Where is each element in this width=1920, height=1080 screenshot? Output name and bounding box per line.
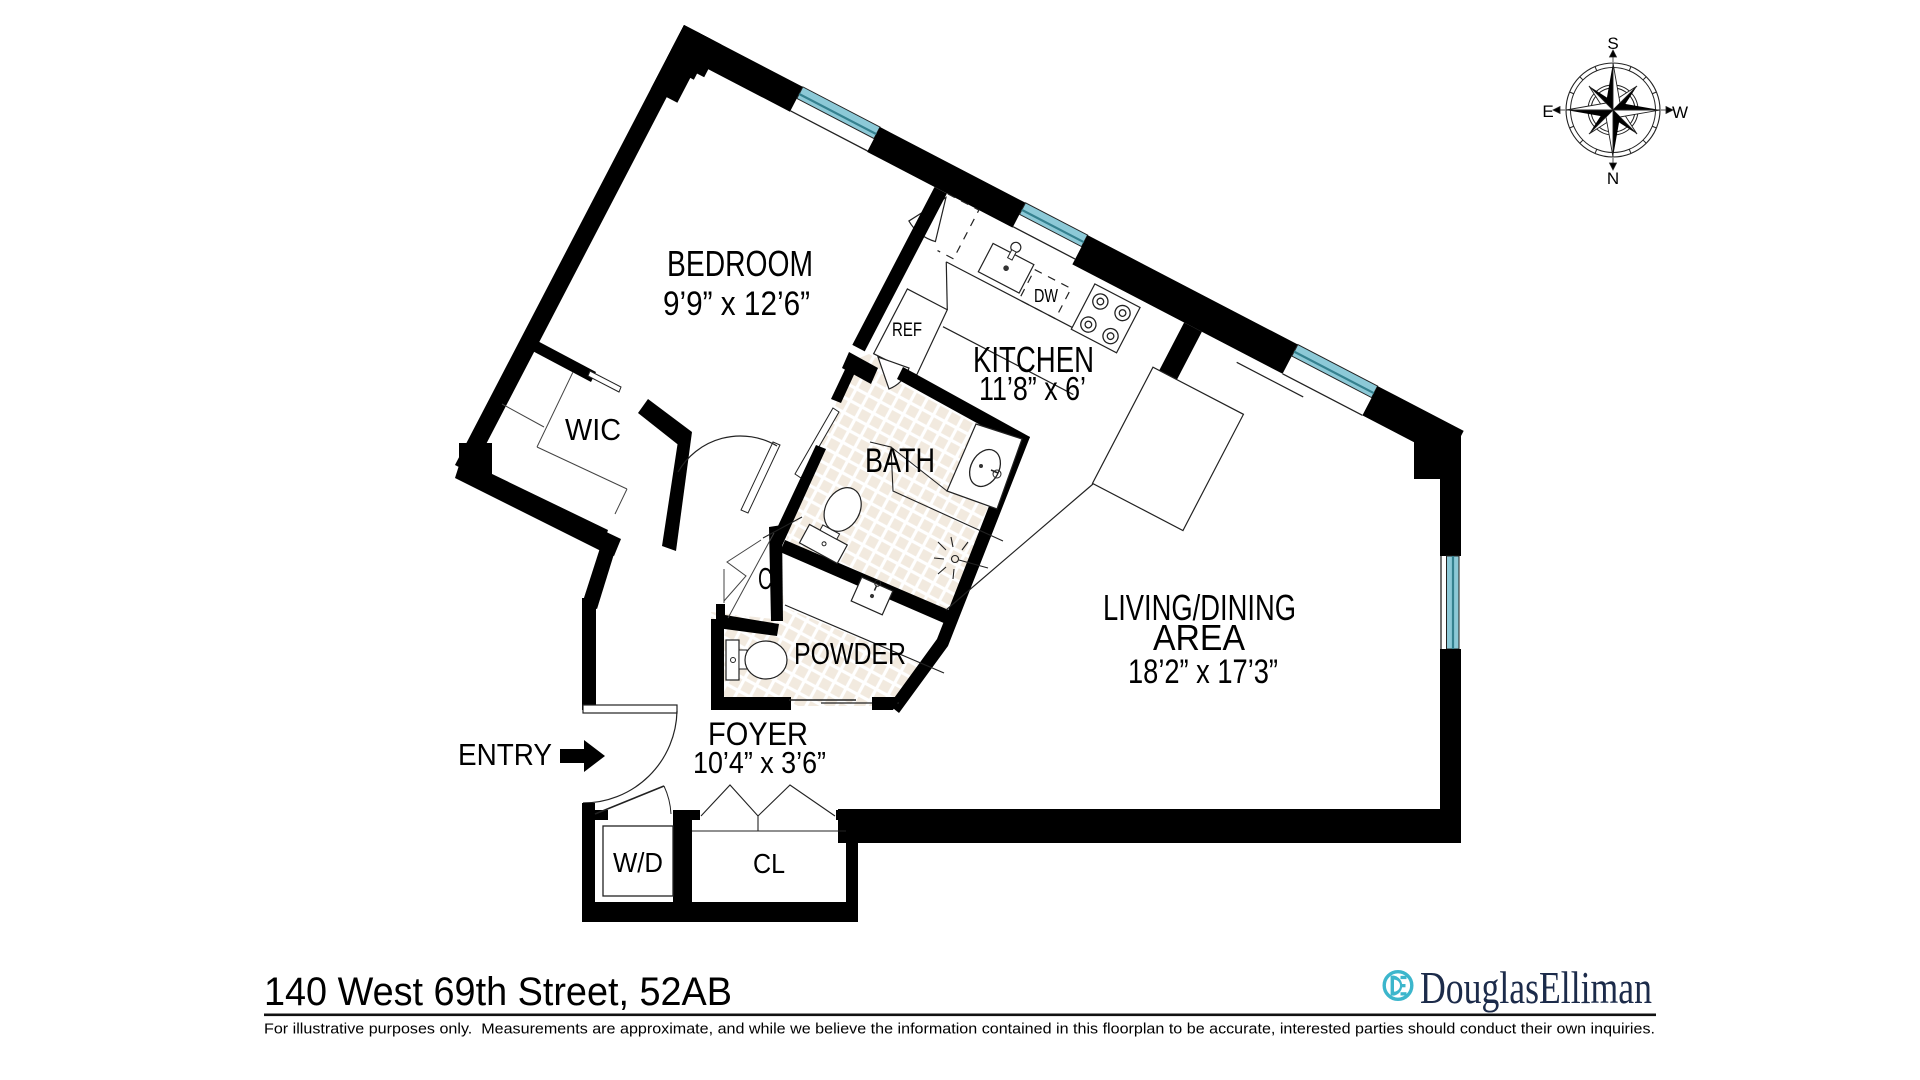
svg-text:ENTRY: ENTRY <box>458 737 552 772</box>
svg-text:140 West 69th Street, 52AB: 140 West 69th Street, 52AB <box>264 970 732 1014</box>
svg-text:For illustrative purposes only: For illustrative purposes only. Measurem… <box>264 1022 1655 1038</box>
svg-text:BATH: BATH <box>865 442 935 480</box>
svg-text:WIC: WIC <box>565 412 621 447</box>
svg-text:CL: CL <box>758 561 783 596</box>
svg-text:W: W <box>1672 103 1688 122</box>
svg-text:11’8” x 6’: 11’8” x 6’ <box>979 370 1086 407</box>
svg-text:W/D: W/D <box>613 847 663 878</box>
svg-text:POWDER: POWDER <box>794 636 906 671</box>
svg-text:E: E <box>1542 102 1553 121</box>
svg-text:9’9” x 12’6”: 9’9” x 12’6” <box>663 285 810 323</box>
svg-text:10’4” x 3’6”: 10’4” x 3’6” <box>693 745 826 780</box>
svg-text:DouglasElliman: DouglasElliman <box>1420 962 1652 1013</box>
svg-text:DW: DW <box>1034 286 1058 306</box>
svg-text:BEDROOM: BEDROOM <box>667 243 813 284</box>
svg-text:CL: CL <box>753 848 785 879</box>
svg-text:S: S <box>1607 34 1618 53</box>
svg-text:18’2” x 17’3”: 18’2” x 17’3” <box>1128 653 1278 691</box>
svg-text:REF: REF <box>892 320 922 341</box>
svg-text:N: N <box>1607 169 1619 188</box>
svg-text:AREA: AREA <box>1153 617 1245 658</box>
